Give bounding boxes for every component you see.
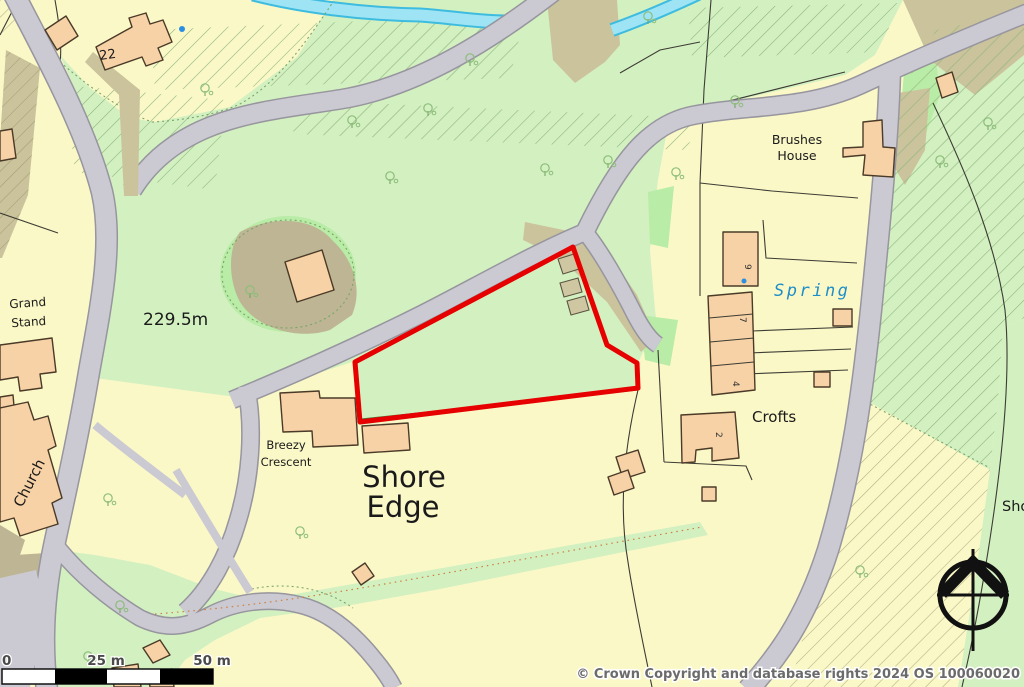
spring-point-icon — [742, 279, 747, 284]
building-9 — [723, 232, 758, 286]
label-shore: Shore — [362, 460, 446, 494]
os-map-extract: 22 Brushes House Grand Stand Church 229.… — [0, 0, 1024, 687]
label-number-7: 7 — [737, 317, 747, 323]
label-house: House — [777, 148, 816, 163]
label-number-2: 2 — [713, 432, 723, 438]
label-crescent: Crescent — [261, 455, 312, 469]
label-plot-22: 22 — [98, 47, 116, 64]
label-number-9: 9 — [742, 264, 752, 270]
label-shore-partial: Sho — [1002, 499, 1024, 515]
label-breezy: Breezy — [266, 438, 306, 452]
map-canvas: 22 Brushes House Grand Stand Church 229.… — [0, 0, 1024, 687]
terrace-row — [708, 292, 755, 395]
label-grand: Grand — [9, 295, 47, 312]
outbuilding-east-a — [833, 309, 852, 326]
scale-tick-50: 50 m — [193, 653, 231, 669]
label-number-4: 4 — [730, 381, 740, 387]
water-point-icon — [179, 26, 185, 32]
label-brushes: Brushes — [772, 132, 822, 147]
copyright-attribution: © Crown Copyright and database rights 20… — [576, 667, 1020, 682]
scale-tick-25: 25 m — [87, 653, 125, 669]
outbuilding-east-b — [814, 372, 830, 387]
label-crofts: Crofts — [752, 408, 796, 426]
label-stand: Stand — [11, 314, 47, 330]
label-spring: Spring — [774, 281, 850, 301]
label-edge: Edge — [367, 490, 440, 524]
label-spot-height: 229.5m — [143, 310, 208, 330]
breezy-crescent-block — [362, 423, 410, 453]
building-small-square — [702, 487, 716, 501]
scale-tick-0: 0 — [2, 653, 11, 669]
